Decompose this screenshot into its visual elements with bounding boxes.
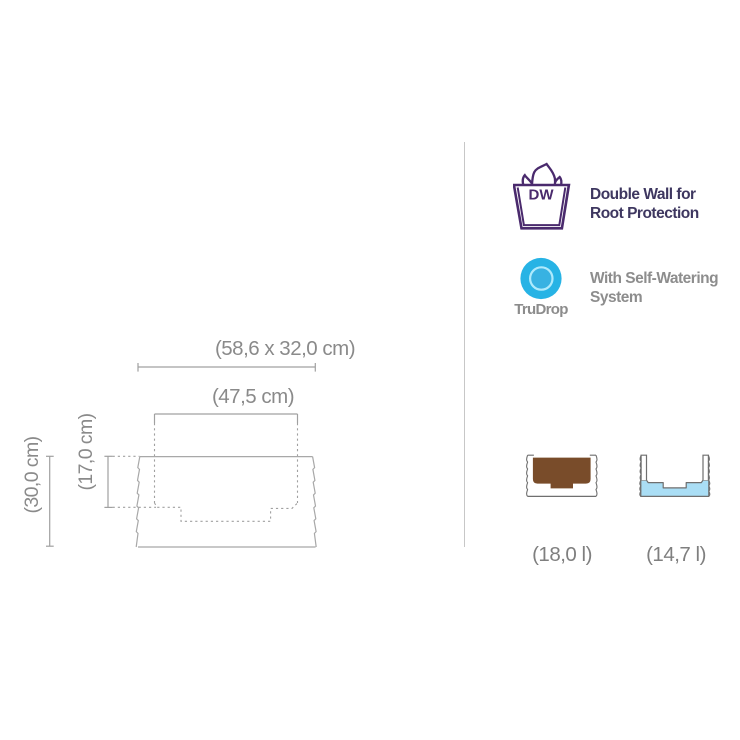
- svg-text:DW: DW: [528, 186, 554, 203]
